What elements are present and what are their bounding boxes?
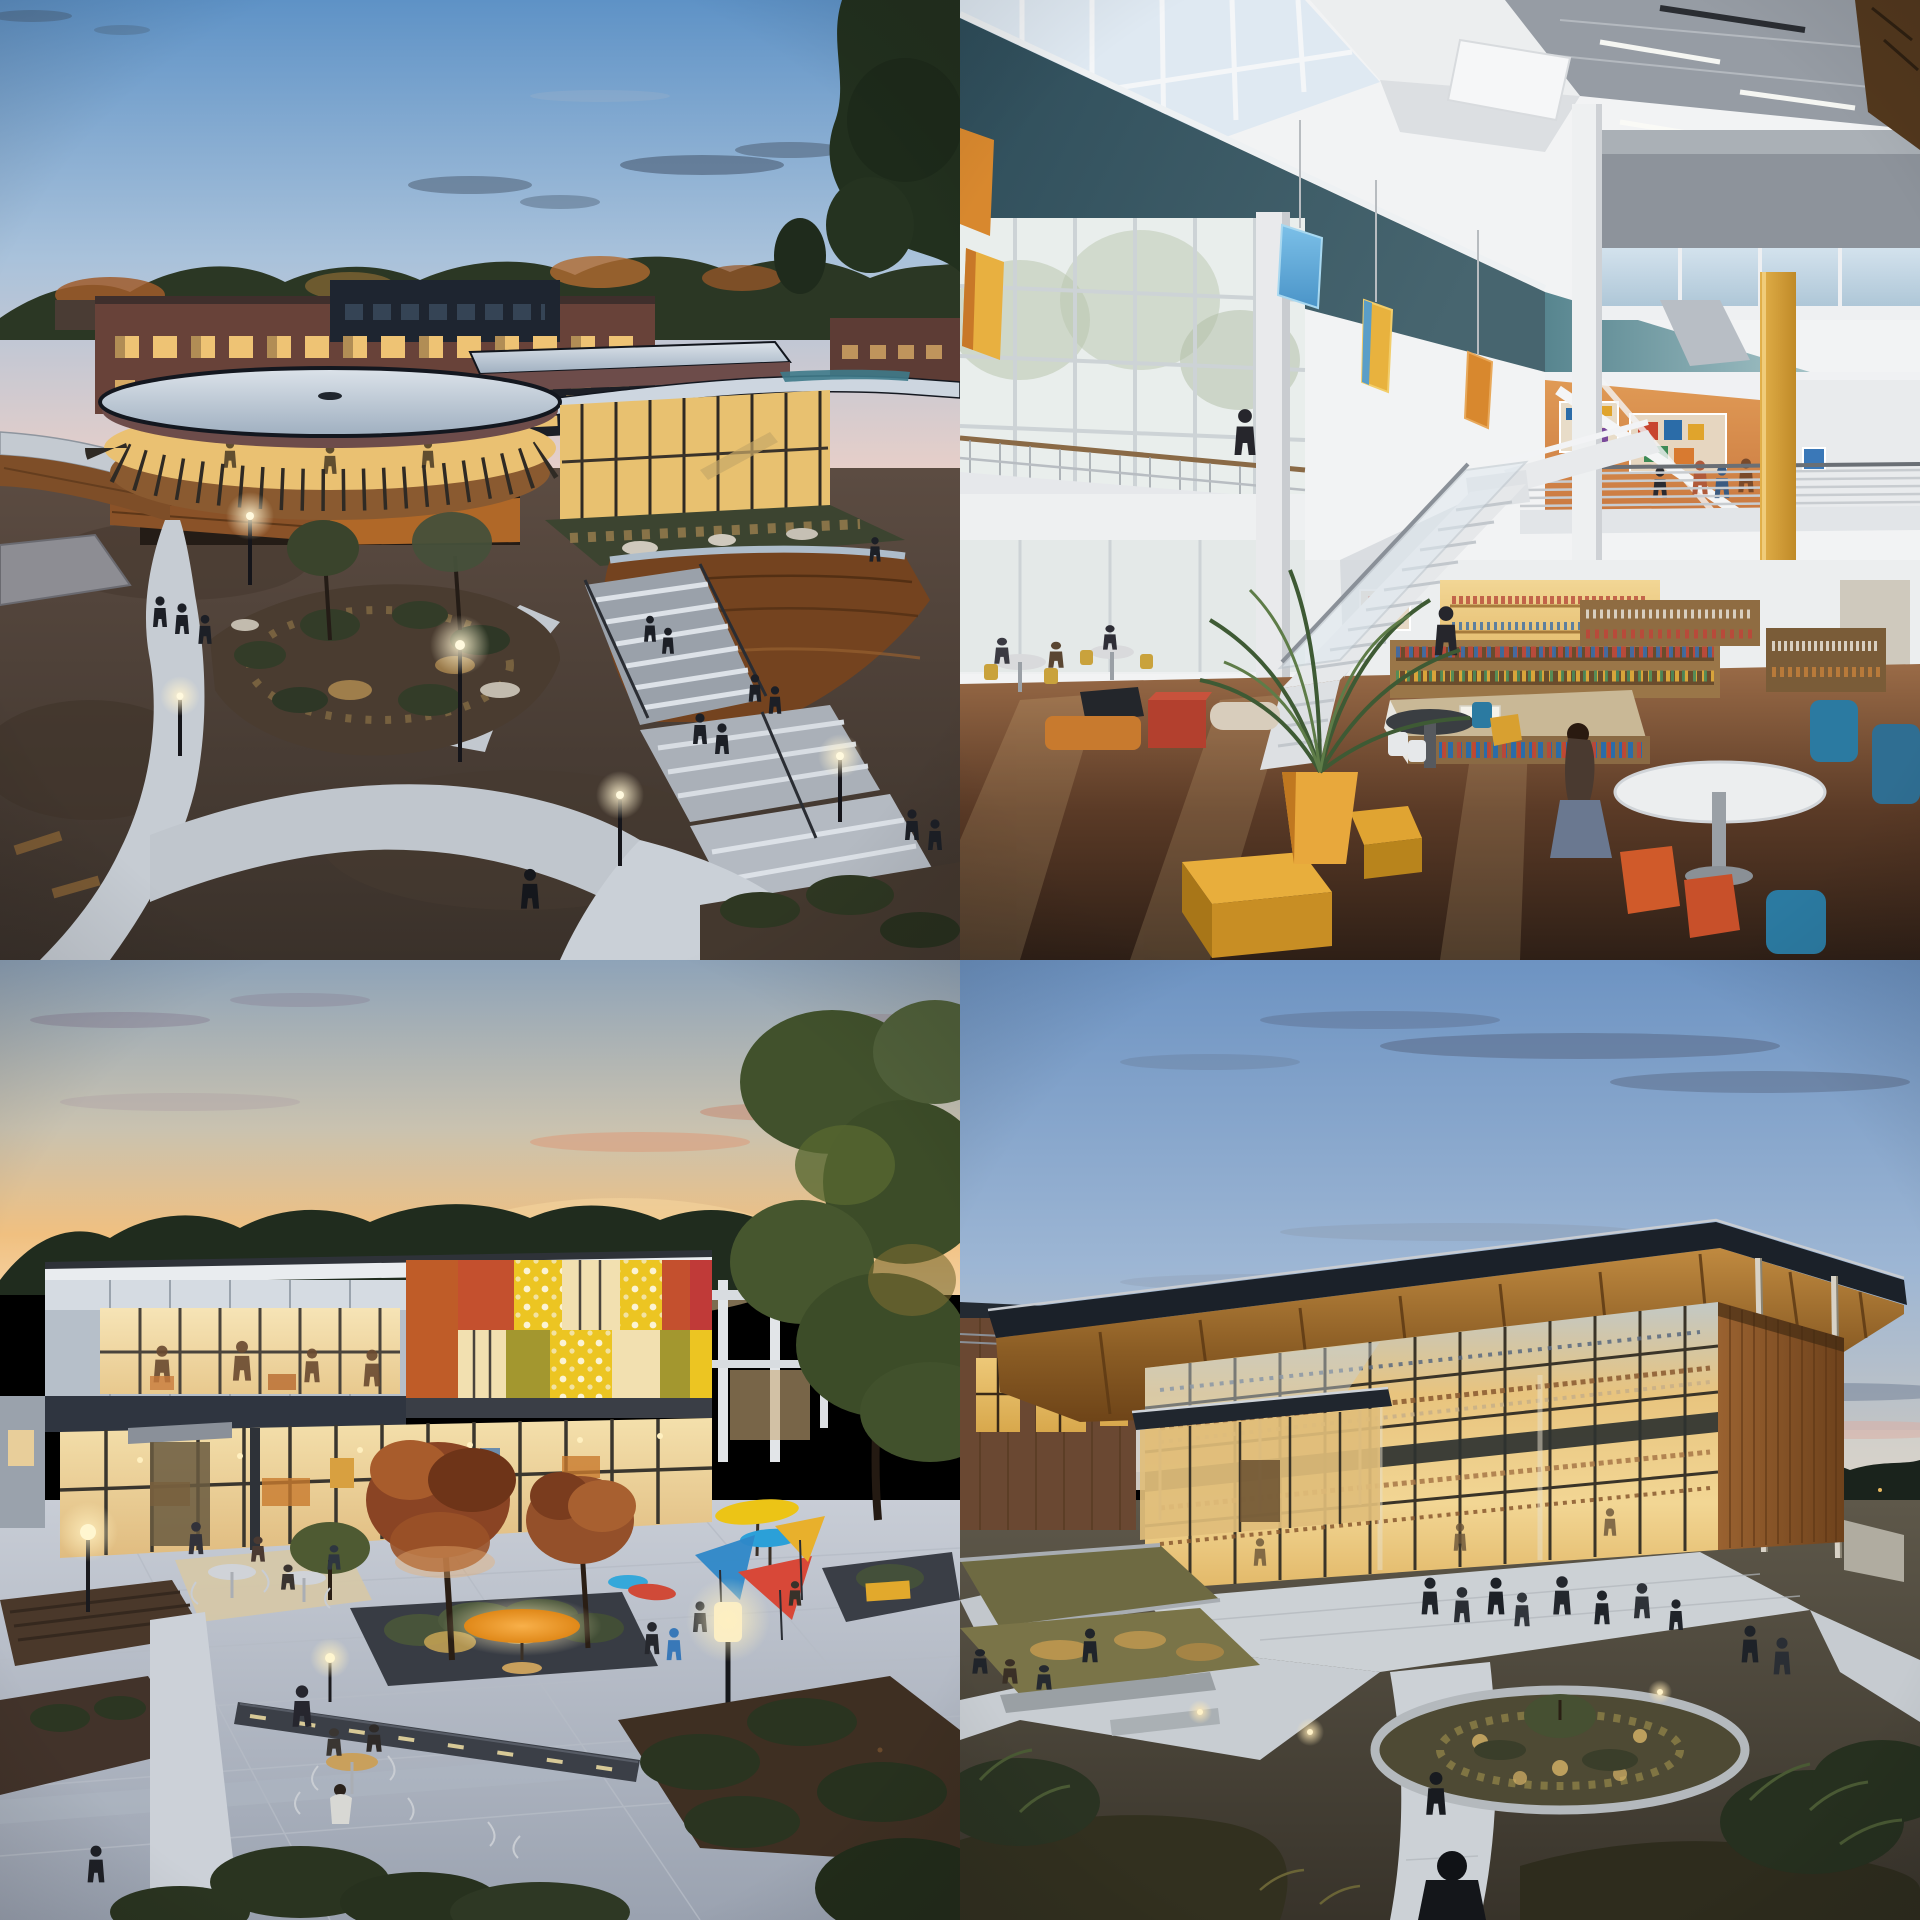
vignette bbox=[0, 960, 960, 1920]
vignette bbox=[960, 0, 1920, 960]
scene-atrium bbox=[960, 0, 1920, 960]
vignette bbox=[0, 0, 960, 960]
photo-exterior-aerial-dusk: Elevated dusk view of a curved modern li… bbox=[0, 0, 960, 960]
scene-courtyard bbox=[0, 960, 960, 1920]
photo-glass-pavilion-dusk: Dusk photograph of a glass-walled librar… bbox=[960, 960, 1920, 1920]
scene-pavilion bbox=[960, 960, 1920, 1920]
vignette bbox=[960, 960, 1920, 1920]
photo-courtyard-sunset: Evening view of a two-storey learning ce… bbox=[0, 960, 960, 1920]
image-grid: Elevated dusk view of a curved modern li… bbox=[0, 0, 1920, 1920]
scene-aerial-dusk bbox=[0, 0, 960, 960]
photo-atrium-interior: Sunlit two-storey library atrium with a … bbox=[960, 0, 1920, 960]
